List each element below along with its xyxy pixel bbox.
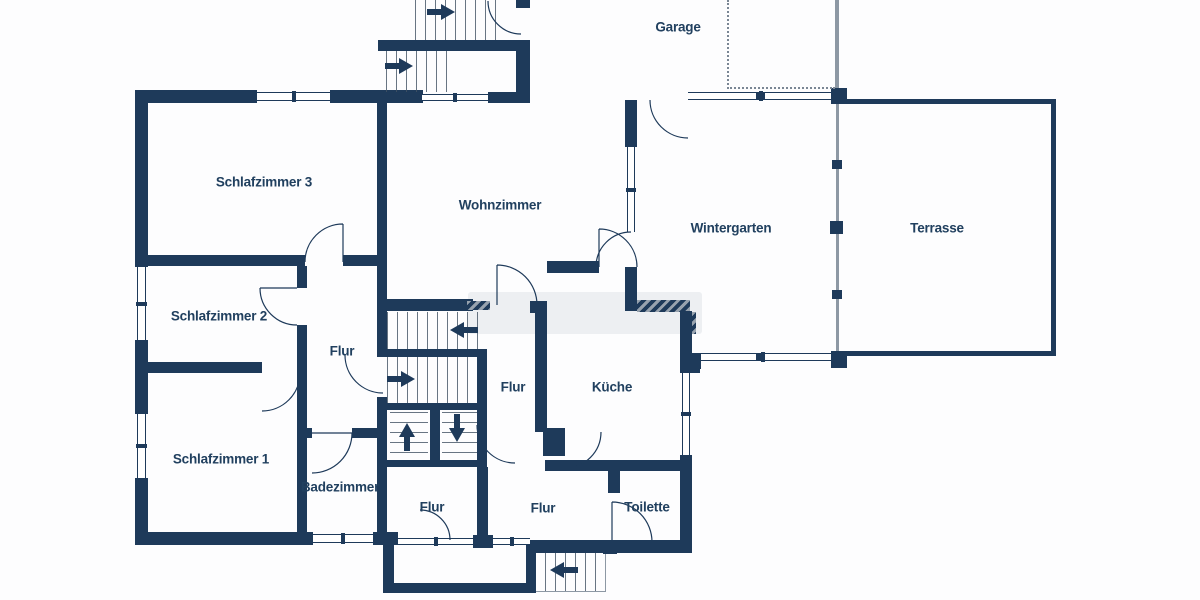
wall	[383, 460, 487, 467]
stairs-basement-down	[442, 412, 477, 458]
wall	[625, 267, 637, 311]
stairs-entry-lower	[386, 51, 452, 92]
wall	[297, 325, 307, 372]
room-label-schlafzimmer-3: Schlafzimmer 3	[216, 175, 312, 190]
wall	[377, 100, 387, 357]
wall	[383, 583, 536, 593]
wall	[135, 340, 148, 414]
window	[493, 538, 530, 545]
stairs-basement-up	[390, 412, 428, 458]
wall	[535, 310, 547, 432]
wall	[135, 532, 313, 545]
wall	[477, 467, 488, 540]
wall	[383, 403, 481, 410]
room-label-flur-treppe: Flur	[501, 380, 526, 395]
stairs-outline	[605, 553, 606, 592]
door-arc	[262, 373, 300, 411]
room-label-flur-mitte: Flur	[330, 344, 355, 359]
wall	[377, 397, 387, 545]
room-label-flur-sued-ost: Flur	[531, 501, 556, 516]
window	[137, 267, 146, 340]
window-post	[756, 92, 765, 100]
room-label-flur-sued-west: Flur	[420, 500, 445, 515]
garage-outline	[727, 0, 729, 89]
wall	[530, 540, 692, 553]
window	[257, 92, 330, 101]
window	[313, 534, 373, 543]
door-arc	[420, 510, 450, 540]
window	[137, 414, 146, 478]
room-label-wintergarten: Wintergarten	[691, 221, 772, 236]
window	[627, 147, 635, 232]
wall	[473, 535, 493, 548]
wall	[297, 266, 307, 288]
window-post	[756, 353, 764, 361]
wall	[430, 410, 440, 467]
room-label-wohnzimmer: Wohnzimmer	[459, 198, 542, 213]
wall	[488, 92, 530, 103]
door-arc	[345, 355, 383, 393]
wall	[297, 428, 312, 438]
stairs-south-exterior	[545, 553, 605, 591]
stairs-main-upper	[387, 312, 485, 349]
garage-wall-line	[835, 0, 839, 88]
garage-outline	[727, 87, 835, 89]
wall	[378, 40, 530, 51]
watermark	[468, 292, 702, 334]
door-arc	[305, 224, 343, 262]
wall	[477, 357, 487, 467]
window	[682, 373, 690, 455]
room-label-schlafzimmer-1: Schlafzimmer 1	[173, 452, 269, 467]
wall	[148, 362, 262, 373]
wall	[526, 545, 536, 593]
wall	[377, 349, 487, 357]
door-arc	[312, 433, 352, 473]
door-arc	[596, 232, 631, 267]
wall	[148, 255, 305, 266]
boundary-post	[832, 290, 842, 299]
wall-hatched	[467, 301, 490, 310]
wall	[608, 471, 620, 493]
wall	[516, 0, 530, 8]
terrace-edge	[839, 351, 1056, 356]
terrace-edge	[1051, 99, 1056, 356]
terrace-edge	[839, 99, 1056, 104]
door-arc	[650, 100, 688, 138]
wall	[685, 353, 701, 369]
wall	[547, 261, 599, 273]
room-label-terrasse: Terrasse	[910, 221, 964, 236]
wall	[545, 460, 692, 471]
boundary-post	[832, 160, 842, 169]
window	[422, 94, 488, 101]
wall	[625, 100, 637, 147]
wall	[297, 372, 307, 535]
wall	[383, 299, 473, 311]
stairs-outline	[536, 591, 606, 592]
door-arc	[599, 229, 637, 267]
window	[398, 538, 473, 545]
stairs-entry-upper	[415, 0, 500, 40]
room-label-schlafzimmer-2: Schlafzimmer 2	[171, 309, 267, 324]
wall	[543, 428, 565, 456]
room-label-kueche: Küche	[592, 380, 632, 395]
floor-plan: Garage Schlafzimmer 3 Wohnzimmer Winterg…	[0, 0, 1200, 600]
boundary-post	[830, 221, 843, 234]
room-label-badezimmer: Badezimmer	[301, 480, 379, 495]
wall	[135, 90, 148, 267]
stairs-main-lower	[387, 357, 475, 403]
room-label-garage: Garage	[655, 20, 700, 35]
wall	[135, 90, 257, 103]
room-label-toilette: Toilette	[624, 500, 669, 515]
